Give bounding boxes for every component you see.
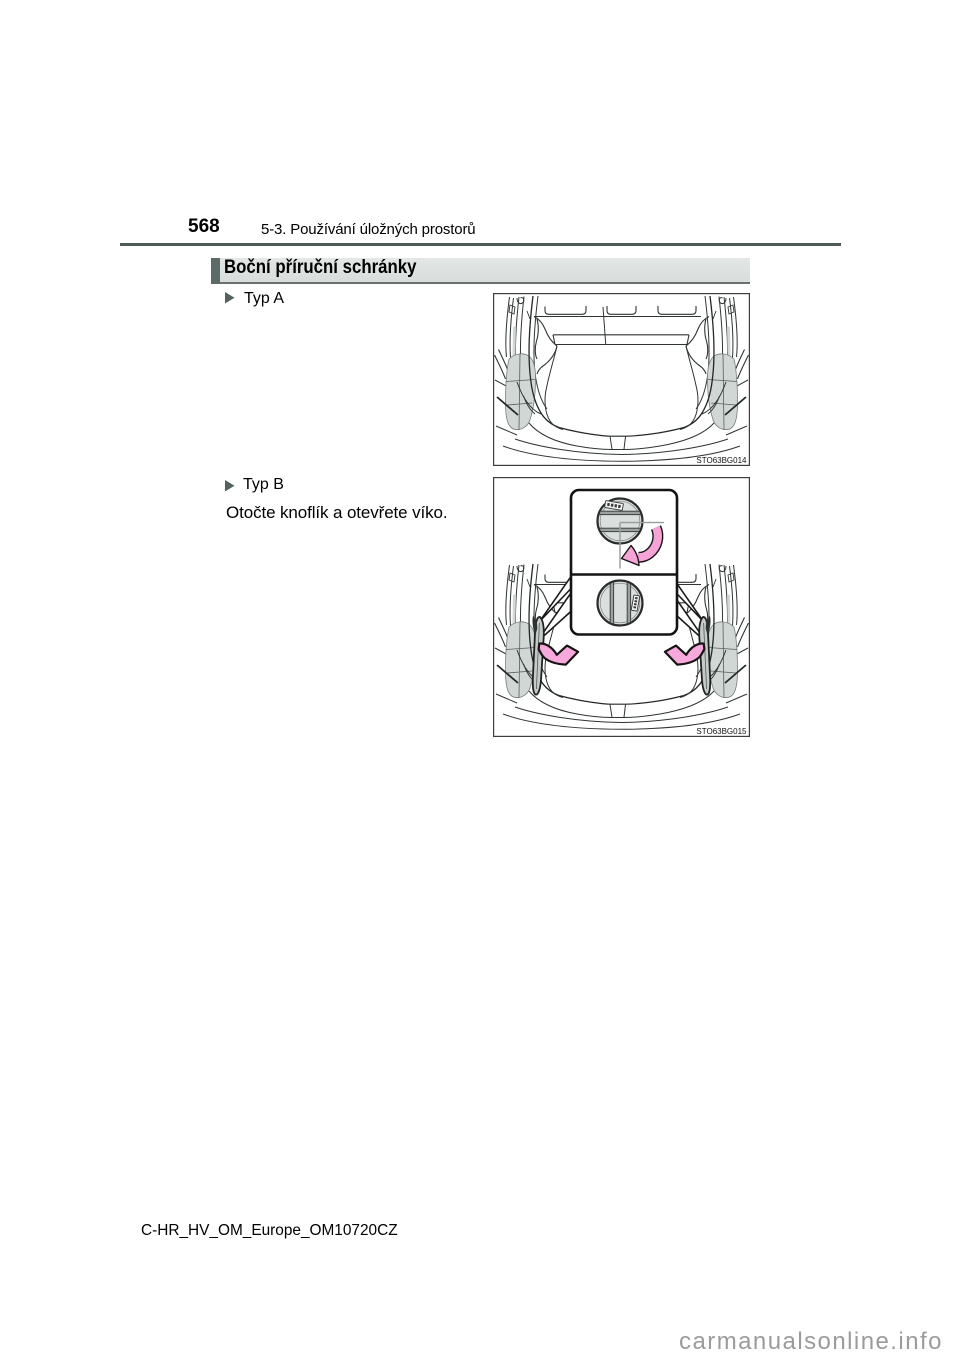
svg-text:STO63BG014: STO63BG014 bbox=[696, 456, 747, 465]
svg-text:STO63BG015: STO63BG015 bbox=[696, 727, 747, 736]
